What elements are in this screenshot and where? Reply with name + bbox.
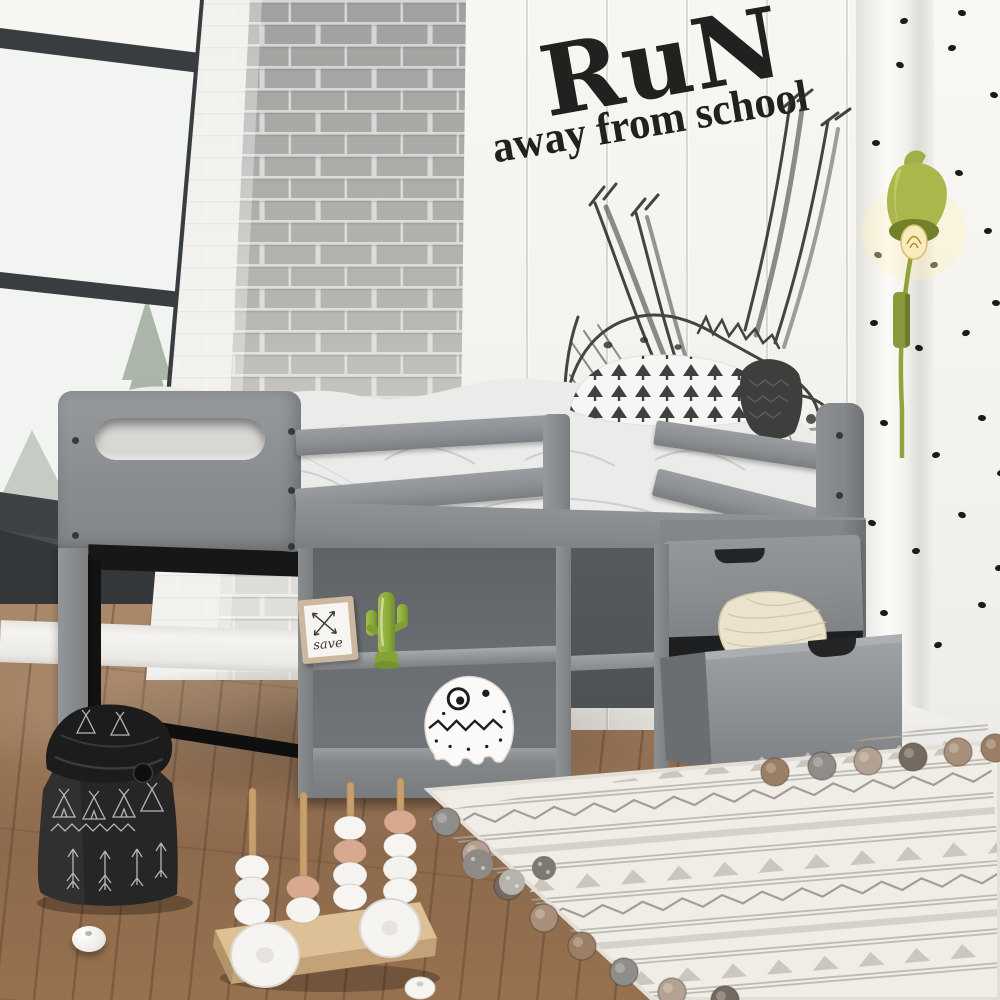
rug	[420, 730, 1000, 1000]
frame-text: save	[313, 636, 344, 654]
frame-doodle: save	[304, 602, 352, 658]
drawer-handle-slot	[715, 548, 765, 564]
bag-button	[134, 764, 153, 783]
rug-pompom	[530, 904, 558, 932]
shelf-panel-left	[298, 548, 313, 798]
screw	[72, 437, 79, 444]
kids-bedroom-photo: RuN away from school	[0, 0, 1000, 1000]
storage-bag	[25, 695, 193, 917]
bag-flap	[46, 705, 172, 783]
rug-pompom	[899, 743, 927, 771]
rug-pompom	[568, 932, 596, 960]
toy-dowels	[249, 778, 404, 912]
screw	[836, 492, 843, 499]
rug-pompom	[944, 738, 972, 766]
wood-bead	[72, 926, 106, 952]
wood-bead	[405, 977, 435, 999]
screw	[836, 432, 843, 439]
screw	[288, 543, 295, 550]
ceramic-cactus	[364, 588, 410, 670]
picture-frame: save	[297, 596, 358, 665]
wood-bead-hole	[85, 931, 92, 936]
screw	[288, 487, 295, 494]
screw	[288, 428, 295, 435]
rug-pompom	[808, 752, 836, 780]
rug-pompom	[761, 758, 789, 786]
rug-pompom	[610, 958, 638, 986]
screw	[72, 532, 79, 539]
rug-pompom	[854, 747, 882, 775]
stacking-toy	[205, 770, 450, 998]
